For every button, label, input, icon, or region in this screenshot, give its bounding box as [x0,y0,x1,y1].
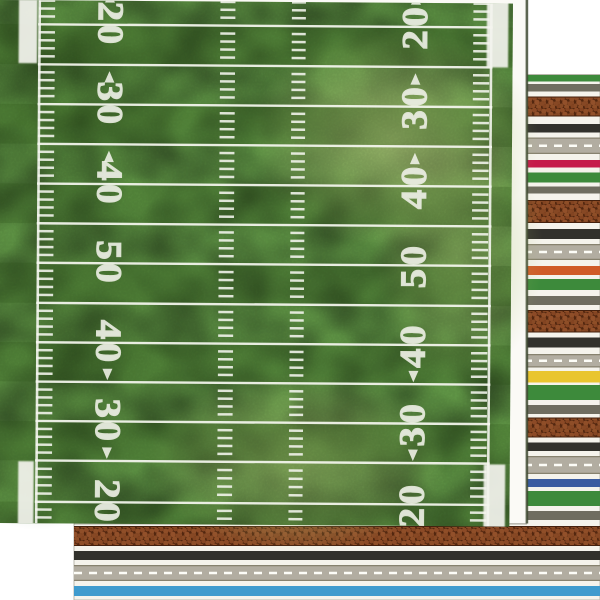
svg-text:20: 20 [395,4,436,50]
svg-text:40: 40 [88,320,129,366]
svg-text:50: 50 [88,240,129,286]
svg-text:40: 40 [393,322,434,368]
svg-text:20: 20 [90,1,131,47]
svg-text:20: 20 [87,479,128,525]
svg-text:30: 30 [394,84,435,130]
svg-text:40: 40 [89,161,130,207]
svg-text:20: 20 [392,481,433,527]
svg-text:30: 30 [392,400,433,446]
svg-text:40: 40 [394,163,435,209]
svg-text:50: 50 [393,242,434,288]
svg-text:30: 30 [87,398,128,444]
svg-text:30: 30 [89,81,130,127]
